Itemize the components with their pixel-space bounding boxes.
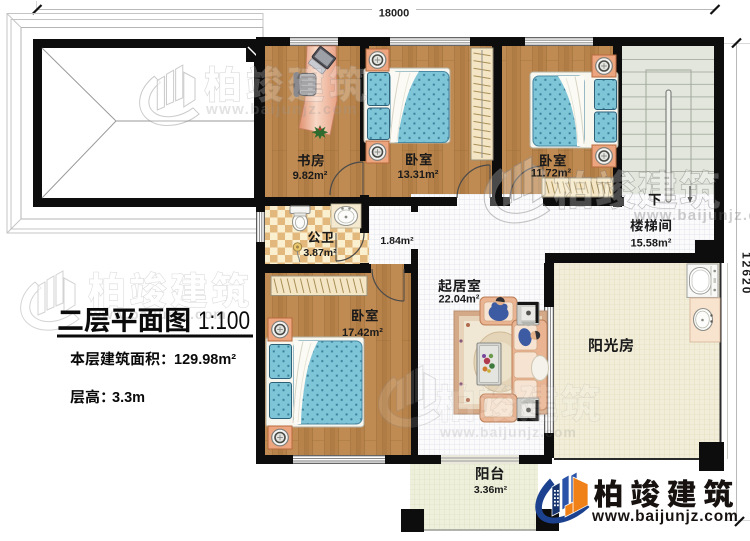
svg-text:129.98m²: 129.98m² (174, 352, 236, 368)
svg-text:www.baijunjz.com: www.baijunjz.com (205, 101, 358, 118)
svg-text:13.31m²: 13.31m² (398, 169, 439, 181)
svg-text:3.87m²: 3.87m² (303, 247, 337, 259)
svg-text:12620: 12620 (740, 252, 750, 295)
svg-text:11.72m²: 11.72m² (531, 168, 572, 180)
svg-text:www.baijunjz.com: www.baijunjz.com (591, 508, 739, 525)
svg-text:1:100: 1:100 (198, 307, 250, 335)
svg-text:www.baijunjz.com: www.baijunjz.com (439, 424, 577, 440)
svg-text:18000: 18000 (379, 8, 410, 20)
svg-text:3.36m²: 3.36m² (474, 484, 508, 496)
svg-text:1.84m²: 1.84m² (380, 235, 414, 247)
svg-text:15.58m²: 15.58m² (631, 238, 672, 250)
svg-text:9.82m²: 9.82m² (293, 170, 328, 182)
svg-text:3.3m: 3.3m (112, 390, 145, 406)
svg-text:17.42m²: 17.42m² (342, 327, 383, 339)
svg-text:22.04m²: 22.04m² (439, 294, 480, 306)
